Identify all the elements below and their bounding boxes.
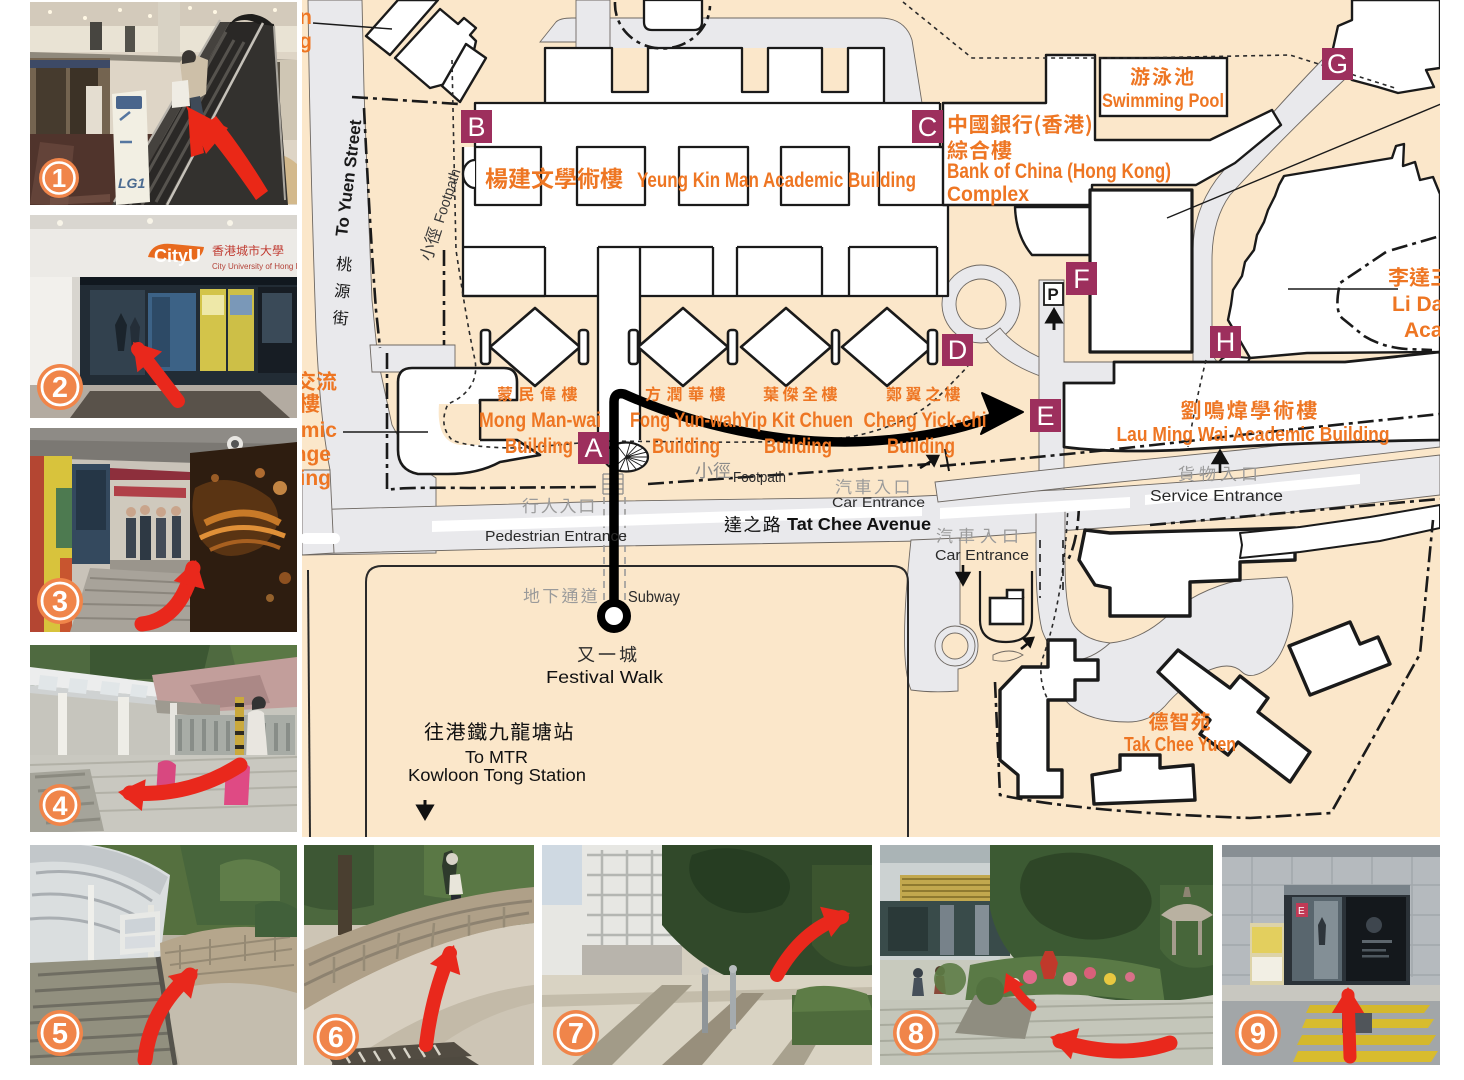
svg-text:F: F	[1073, 264, 1090, 294]
svg-text:Building: Building	[764, 435, 832, 458]
svg-text:Footpath: Footpath	[733, 470, 786, 486]
svg-text:7: 7	[568, 1018, 584, 1050]
svg-text:g: g	[302, 30, 312, 53]
svg-text:E: E	[1036, 401, 1054, 431]
svg-text:Mong Man-wai: Mong Man-wai	[479, 409, 601, 432]
svg-text:A: A	[584, 433, 602, 463]
svg-text:Subway: Subway	[628, 589, 680, 606]
svg-text:6: 6	[328, 1022, 344, 1054]
svg-text:Complex: Complex	[947, 183, 1029, 206]
svg-text:Acad: Acad	[1404, 319, 1440, 342]
svg-text:Festival Walk: Festival Walk	[546, 667, 663, 687]
svg-text:Pedestrian Entrance: Pedestrian Entrance	[485, 528, 627, 545]
svg-text:Bank of China (Hong Kong): Bank of China (Hong Kong)	[947, 160, 1171, 183]
svg-text:Service Entrance: Service Entrance	[1150, 488, 1283, 505]
svg-text:Kowloon Tong Station: Kowloon Tong Station	[408, 765, 586, 785]
svg-text:To MTR: To MTR	[465, 747, 528, 767]
svg-text:Yeung Kin Man Academic Buildin: Yeung Kin Man Academic Building	[637, 169, 916, 192]
svg-text:Building: Building	[505, 435, 573, 458]
svg-text:n: n	[302, 6, 312, 29]
svg-text:2: 2	[52, 372, 68, 404]
svg-text:C: C	[918, 112, 938, 142]
svg-text:Cheng Yick-chi: Cheng Yick-chi	[864, 409, 987, 432]
svg-text:ing: ing	[302, 467, 331, 490]
svg-text:Car Entrance: Car Entrance	[832, 494, 925, 510]
svg-text:emic: emic	[302, 419, 337, 442]
svg-text:G: G	[1327, 49, 1348, 79]
svg-text:B: B	[467, 112, 485, 142]
svg-text:H: H	[1216, 327, 1236, 357]
svg-text:Yip Kit Chuen: Yip Kit Chuen	[741, 409, 853, 432]
svg-text:3: 3	[52, 586, 68, 618]
svg-text:Li Dak: Li Dak	[1392, 293, 1440, 316]
svg-text:D: D	[948, 335, 968, 365]
svg-text:P: P	[1047, 285, 1058, 304]
svg-text:9: 9	[1250, 1018, 1266, 1050]
svg-text:8: 8	[908, 1018, 924, 1050]
svg-text:CityU: CityU	[154, 246, 201, 266]
svg-text:Building: Building	[887, 435, 955, 458]
svg-text:Swimming Pool: Swimming Pool	[1102, 91, 1224, 112]
svg-text:Tat Chee Avenue: Tat Chee Avenue	[787, 514, 931, 534]
svg-text:Car Entrance: Car Entrance	[935, 547, 1029, 564]
svg-text:E: E	[1298, 906, 1305, 917]
svg-text:Building: Building	[652, 435, 720, 458]
svg-text:4: 4	[52, 791, 67, 821]
svg-text:5: 5	[52, 1018, 68, 1050]
svg-text:1: 1	[52, 163, 66, 193]
svg-text:City University of Hong Kong: City University of Hong Kong	[212, 262, 297, 271]
svg-text:Fong Yun-wah: Fong Yun-wah	[630, 409, 742, 432]
svg-text:Tak Chee Yuen: Tak Chee Yuen	[1124, 734, 1236, 756]
svg-text:nge: nge	[302, 443, 331, 466]
svg-text:LG1: LG1	[118, 175, 145, 191]
svg-text:Lau Ming Wai Academic Building: Lau Ming Wai Academic Building	[1117, 424, 1390, 446]
